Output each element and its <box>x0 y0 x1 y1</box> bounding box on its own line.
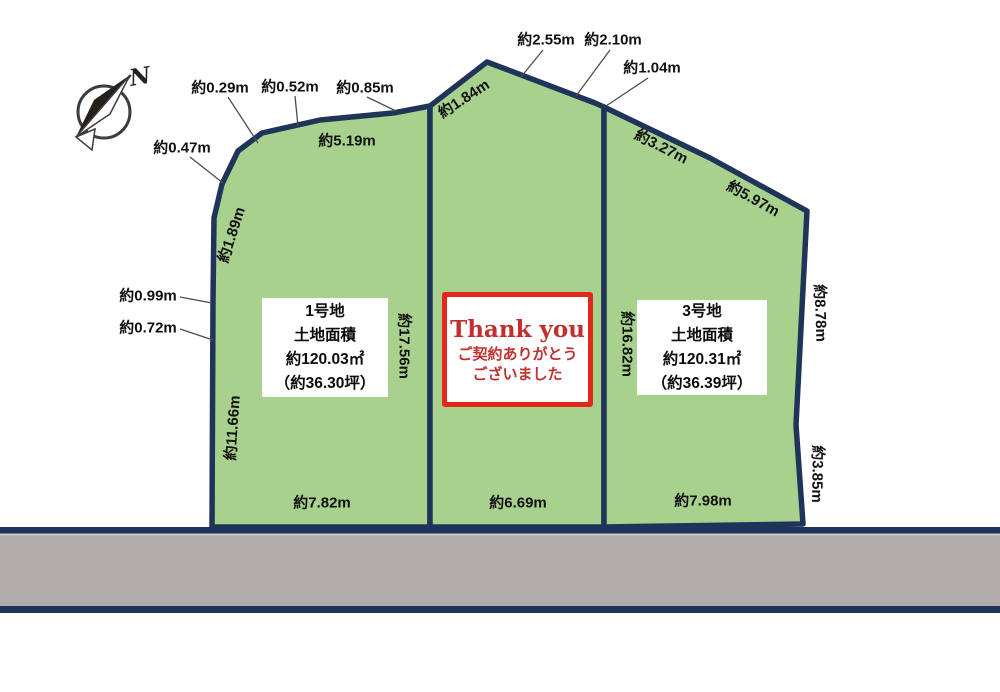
dim-bottom-6-69m: 約6.69m <box>489 496 547 511</box>
plot3-area: 約120.31㎡ <box>663 348 741 372</box>
dim-divider-16-82m: 約16.82m <box>620 311 635 377</box>
dim-top-0-85m: 約0.85m <box>336 81 394 96</box>
leader-0-47 <box>190 157 223 183</box>
leader-2-55 <box>521 50 543 77</box>
leader-1-04 <box>606 78 648 106</box>
plot3-name: 3号地 <box>682 300 722 324</box>
leader-0-72 <box>180 329 213 340</box>
plot3-area-title: 土地面積 <box>671 324 733 348</box>
leader-0-99 <box>180 297 212 303</box>
sold-title: Thank you <box>450 315 585 345</box>
dim-divider-17-56m: 約17.56m <box>397 313 412 379</box>
dim-left-0-72m: 約0.72m <box>119 321 177 336</box>
dim-top-2-55m: 約2.55m <box>517 33 575 48</box>
dim-top-1-04m: 約1.04m <box>623 61 681 76</box>
road-bottom-border <box>0 606 1000 613</box>
leader-0-85 <box>367 97 396 111</box>
dim-top-0-52m: 約0.52m <box>261 80 319 95</box>
plot1-name: 1号地 <box>305 300 345 324</box>
dim-right-3-85m: 約3.85m <box>809 445 825 503</box>
road-surface <box>0 536 1000 607</box>
dim-left-0-99m: 約0.99m <box>119 289 177 304</box>
plot1-info-box: 1号地 土地面積 約120.03㎡ （約36.30坪） <box>262 298 388 397</box>
dim-right-8-78m: 約8.78m <box>812 284 829 342</box>
leader-0-29 <box>228 97 258 143</box>
sold-line1: ご契約ありがとう <box>457 345 577 365</box>
dim-top-5-19m: 約5.19m <box>318 134 376 149</box>
plot1-tsubo: （約36.30坪） <box>275 372 376 396</box>
plot1-area-title: 土地面積 <box>294 324 356 348</box>
land-plot-diagram: N 約0.29m 約0.52m 約0.85m 約0.47m 約5.19m 約2.… <box>0 0 1000 692</box>
plot3-tsubo: （約36.39坪） <box>652 372 753 396</box>
sold-line2: ございました <box>472 365 562 385</box>
dim-bottom-7-98m: 約7.98m <box>674 494 732 509</box>
road <box>0 527 1000 613</box>
compass-icon: N <box>76 61 154 150</box>
dim-bottom-7-82m: 約7.82m <box>293 496 351 511</box>
dim-left-11-66m: 約11.66m <box>223 395 243 461</box>
leader-2-10 <box>576 50 610 96</box>
plot2-sold-box: Thank you ご契約ありがとう ございました <box>442 292 593 407</box>
dim-left-0-47m: 約0.47m <box>153 141 211 156</box>
compass-needle-light <box>76 75 130 137</box>
road-edge-line <box>0 534 1000 536</box>
plot1-area: 約120.03㎡ <box>286 348 364 372</box>
compass-north-label: N <box>126 61 153 92</box>
plot3-info-box: 3号地 土地面積 約120.31㎡ （約36.39坪） <box>637 300 767 395</box>
leader-0-52 <box>295 96 298 126</box>
dim-top-0-29m: 約0.29m <box>191 81 249 96</box>
dim-top-2-10m: 約2.10m <box>584 33 642 48</box>
